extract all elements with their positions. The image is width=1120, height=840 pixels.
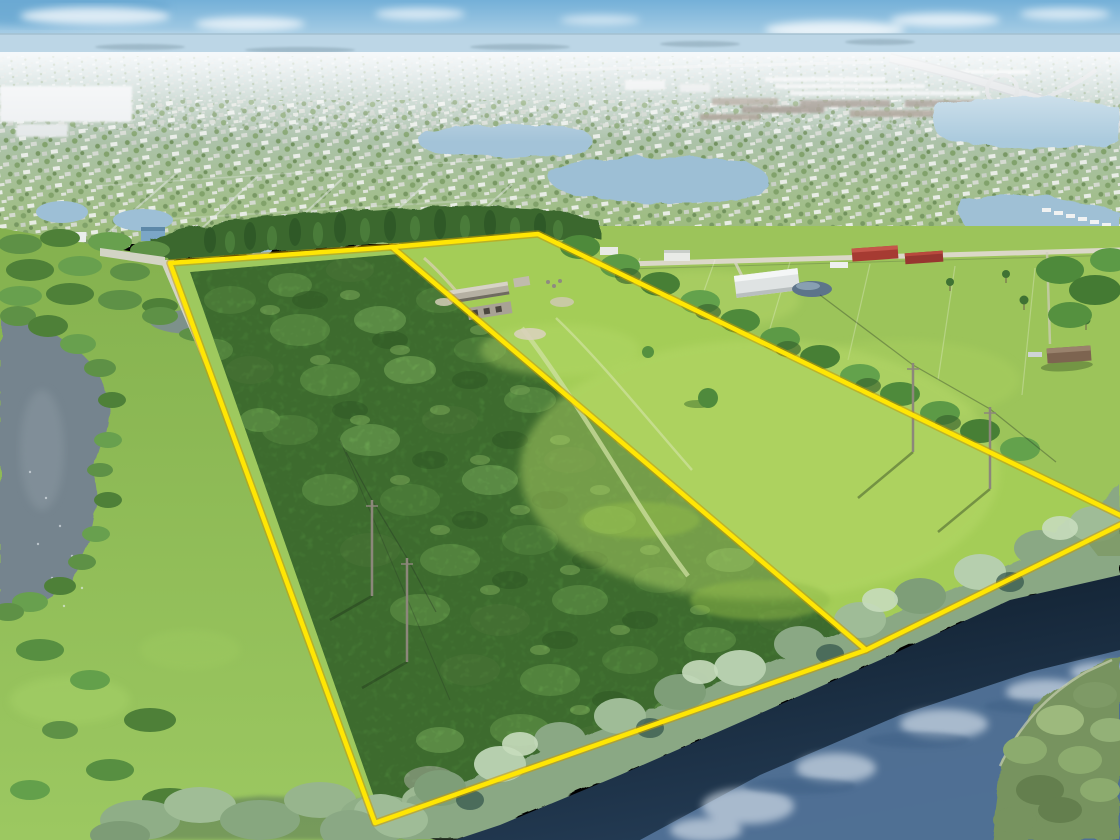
horizon-haze xyxy=(0,52,1120,142)
aerial-photo-canvas xyxy=(0,0,1120,840)
farm-house-a xyxy=(600,247,618,255)
pond-far-left-a xyxy=(36,201,88,223)
boat xyxy=(1028,352,1042,357)
aerial-photo xyxy=(0,0,1120,840)
far-shoreline xyxy=(0,33,1120,35)
trailer xyxy=(830,262,848,268)
